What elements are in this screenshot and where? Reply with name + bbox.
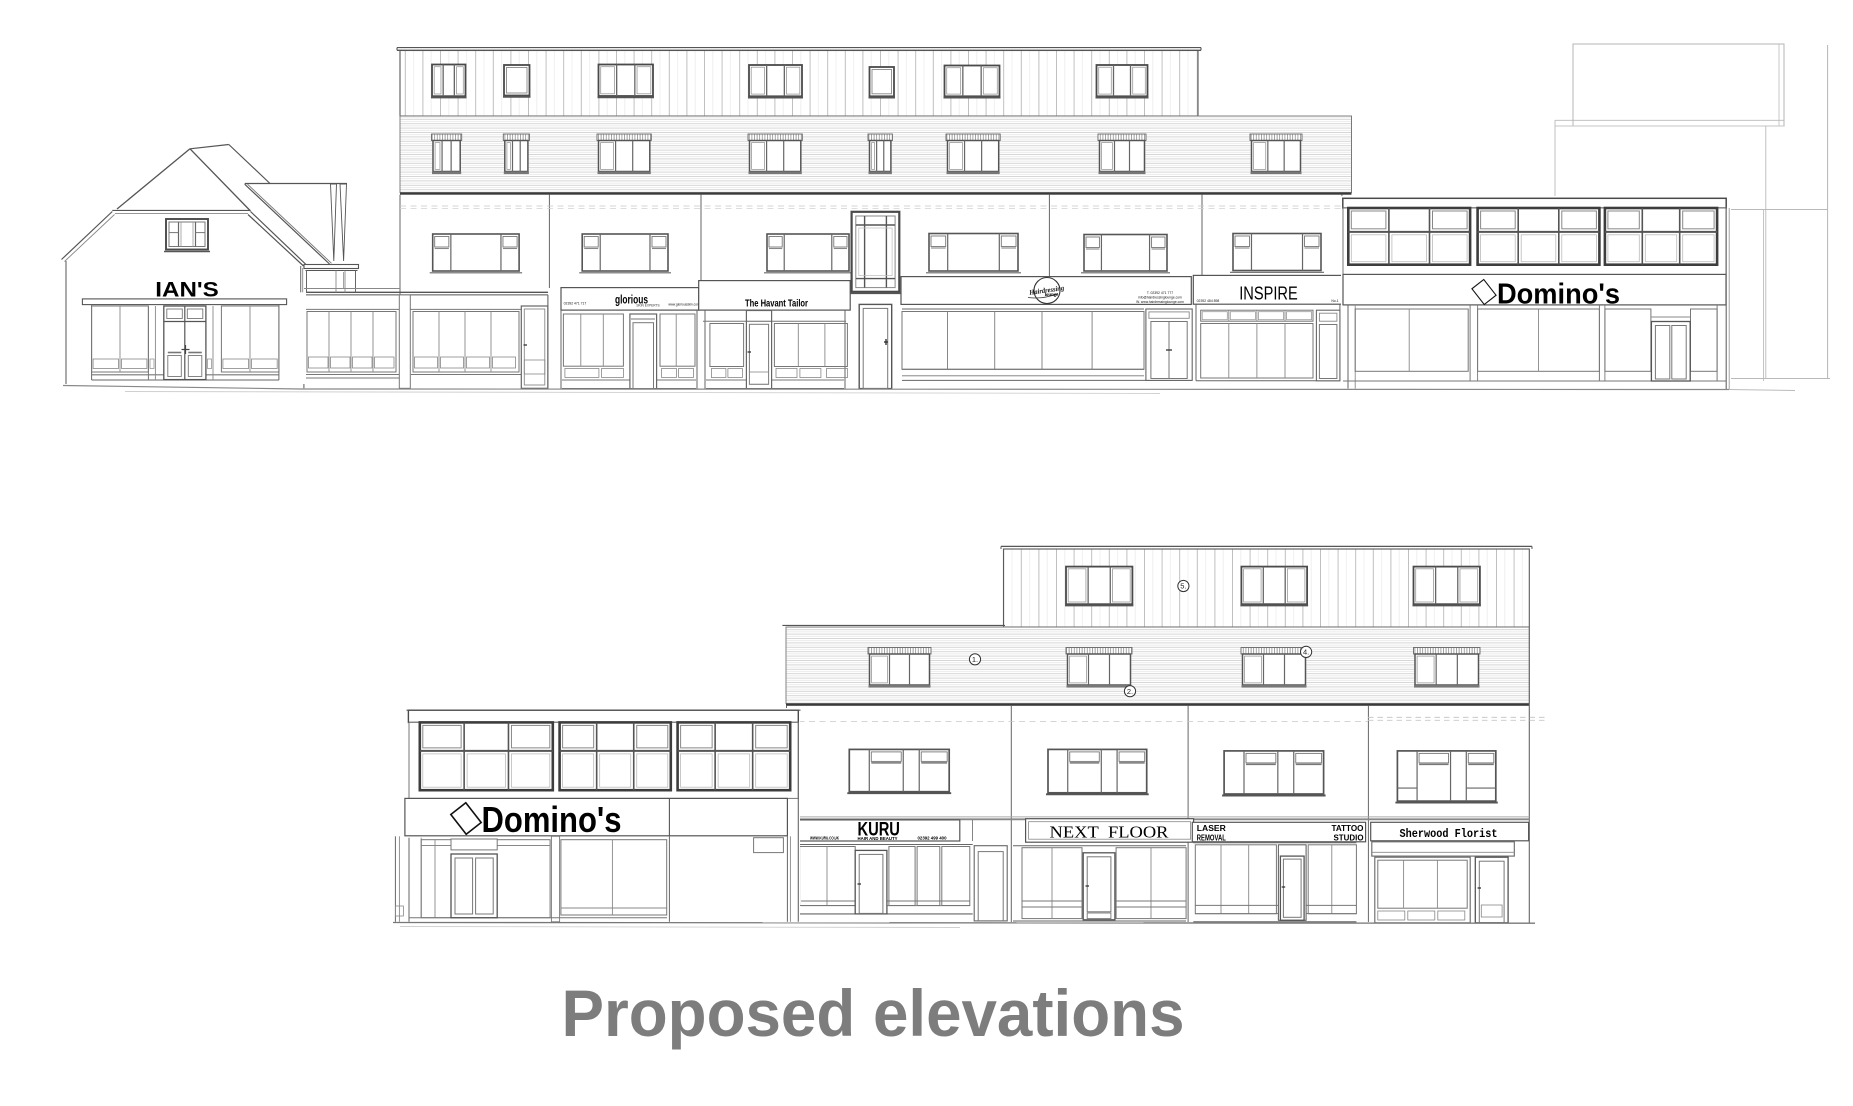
svg-text:LASER: LASER [1197, 824, 1226, 833]
svg-text:W. www.hairdressinglounge.com: W. www.hairdressinglounge.com [1136, 300, 1184, 304]
svg-text:SKIN EXPERTS: SKIN EXPERTS [636, 304, 659, 308]
svg-text:WWW.KURU.CO.UK: WWW.KURU.CO.UK [810, 836, 840, 841]
svg-text:02392 484 898: 02392 484 898 [1197, 299, 1220, 303]
svg-text:STUDIO: STUDIO [1334, 833, 1364, 842]
svg-text:4.: 4. [1303, 648, 1309, 657]
svg-text:2.: 2. [1127, 687, 1133, 696]
svg-text:Domino's: Domino's [482, 799, 622, 840]
svg-text:02392 499 400: 02392 499 400 [918, 836, 948, 841]
svg-text:5.: 5. [1180, 582, 1186, 591]
svg-text:Proposed elevations: Proposed elevations [562, 976, 1185, 1050]
svg-text:The Havant Tailor: The Havant Tailor [745, 298, 808, 309]
svg-text:IAN'S: IAN'S [155, 278, 219, 302]
svg-text:Domino's: Domino's [1497, 278, 1620, 310]
svg-text:info@hairdressinglounge.com: info@hairdressinglounge.com [1138, 296, 1182, 300]
svg-text:INSPIRE: INSPIRE [1239, 284, 1298, 304]
svg-text:REMOVAL: REMOVAL [1197, 833, 1226, 842]
svg-text:www.gloriousskin.com: www.gloriousskin.com [668, 303, 700, 307]
svg-text:1.: 1. [972, 655, 978, 664]
svg-text:Sherwood Florist: Sherwood Florist [1400, 827, 1498, 841]
svg-text:T. 02392 471 777: T. 02392 471 777 [1147, 291, 1173, 295]
svg-text:HAIR AND BEAUTY: HAIR AND BEAUTY [858, 836, 898, 841]
svg-text:NEXT FLOOR: NEXT FLOOR [1050, 822, 1169, 841]
svg-text:No.1: No.1 [1331, 299, 1338, 303]
svg-text:TATTOO: TATTOO [1332, 824, 1364, 833]
svg-text:lounge: lounge [1045, 293, 1059, 298]
svg-text:02392 471 717: 02392 471 717 [564, 302, 587, 306]
